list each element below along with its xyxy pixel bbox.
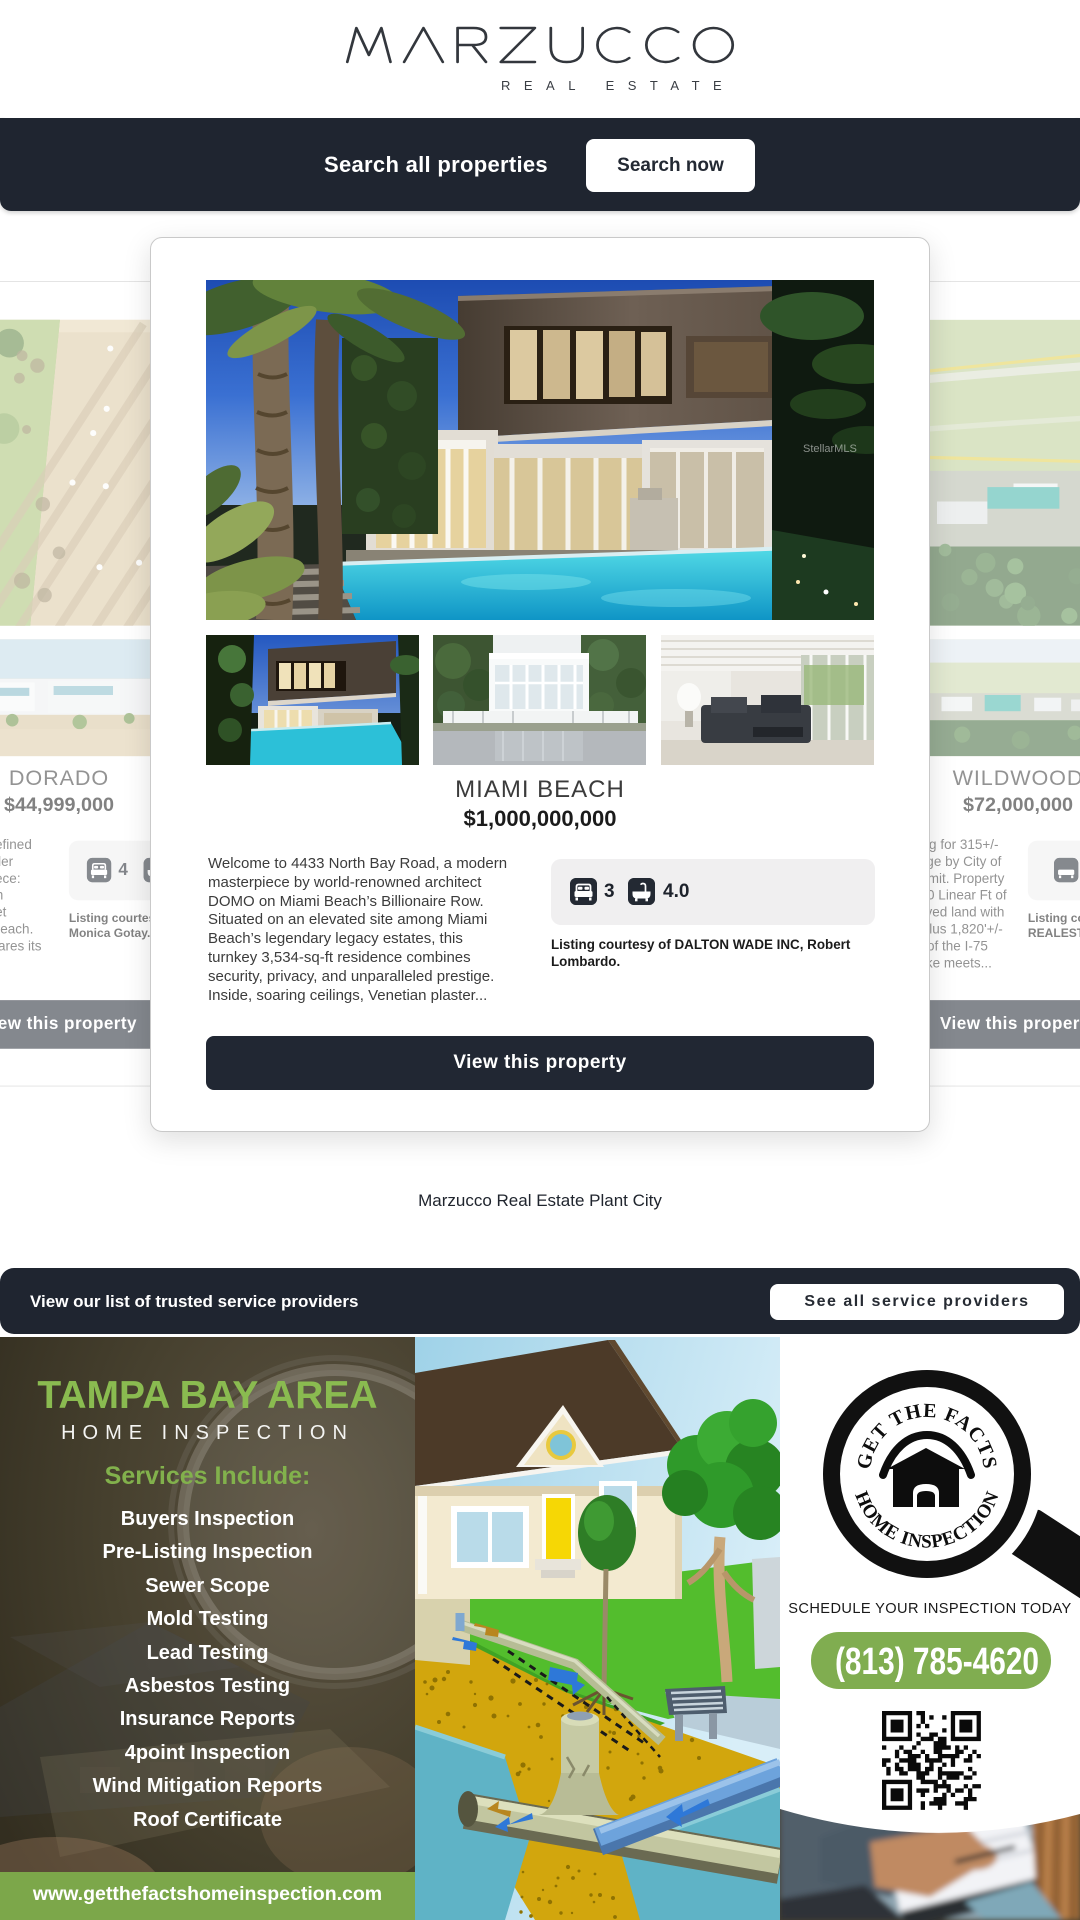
svg-text:StellarMLS: StellarMLS: [803, 443, 857, 455]
svg-text:(813) 785-4620: (813) 785-4620: [835, 1641, 1039, 1683]
